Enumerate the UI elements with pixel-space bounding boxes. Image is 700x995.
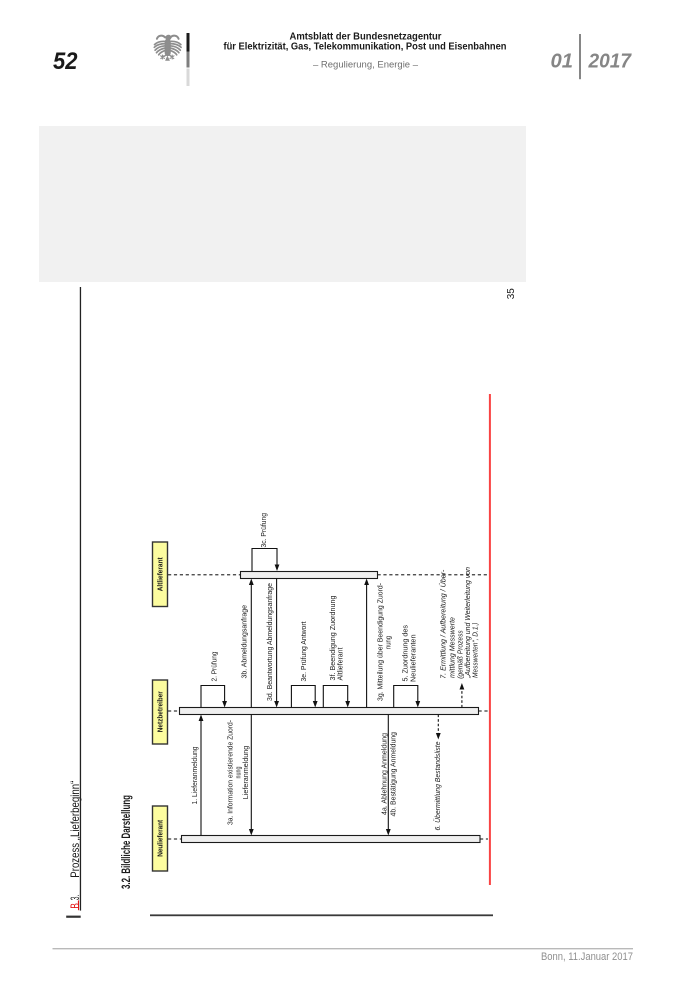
svg-text:(gemäß Prozess: (gemäß Prozess xyxy=(458,630,465,679)
svg-text:7. Ermittlung / Aufbereitung /: 7. Ermittlung / Aufbereitung / Über- xyxy=(440,569,448,679)
svg-text:52: 52 xyxy=(53,48,78,75)
svg-text:35: 35 xyxy=(506,288,517,299)
svg-text:3c. Prüfung: 3c. Prüfung xyxy=(261,513,268,548)
svg-text:Prozess „Lieferbeginn“: Prozess „Lieferbeginn“ xyxy=(68,781,82,878)
svg-text:2017: 2017 xyxy=(588,50,633,73)
svg-text:Altlieferant: Altlieferant xyxy=(338,647,345,680)
svg-text:4a. Ablehnung Anmeldung: 4a. Ablehnung Anmeldung xyxy=(382,733,389,815)
svg-text:Neulieferanten: Neulieferanten xyxy=(411,634,418,682)
svg-text:5. Zuordnung des: 5. Zuordnung des xyxy=(403,624,410,681)
svg-text:für Elektrizität, Gas, Telekom: für Elektrizität, Gas, Telekommunikation… xyxy=(224,41,507,53)
svg-text:Lieferanmeldung: Lieferanmeldung xyxy=(243,746,250,800)
svg-text:3a. Information existierende Z: 3a. Information existierende Zuord- xyxy=(228,719,235,825)
svg-text:01: 01 xyxy=(551,50,574,73)
svg-text:mittlung Messwerte: mittlung Messwerte xyxy=(450,617,457,678)
svg-text:nung: nung xyxy=(386,636,393,649)
svg-text:3b. Abmeldungsanfrage: 3b. Abmeldungsanfrage xyxy=(242,605,249,679)
svg-text:„Aufbereitung und Weiterleitun: „Aufbereitung und Weiterleitung von xyxy=(465,567,472,679)
svg-text:– Regulierung, Energie –: – Regulierung, Energie – xyxy=(313,59,419,70)
svg-text:Bonn, 11.Januar 2017: Bonn, 11.Januar 2017 xyxy=(541,951,633,963)
svg-text:Netzbetreiber: Netzbetreiber xyxy=(155,691,164,732)
svg-text:4b. Bestätigung Anmeldung: 4b. Bestätigung Anmeldung xyxy=(391,732,398,817)
svg-text:nung: nung xyxy=(236,766,243,778)
svg-text:B.: B. xyxy=(68,901,82,909)
svg-text:3d. Beantwortung Abmeldungsanf: 3d. Beantwortung Abmeldungsanfrage xyxy=(267,583,274,701)
svg-text:3.2. Bildliche Darstellung: 3.2. Bildliche Darstellung xyxy=(119,795,133,889)
svg-text:3f. Beendigung Zuordnung: 3f. Beendigung Zuordnung xyxy=(330,595,337,680)
svg-text:3.: 3. xyxy=(68,895,82,901)
svg-text:3e. Prüfung Antwort: 3e. Prüfung Antwort xyxy=(301,621,308,681)
svg-text:3g. Mitteilung über Beendigung: 3g. Mitteilung über Beendigung Zuord- xyxy=(378,582,385,701)
svg-text:Messwerten“, D.1.): Messwerten“, D.1.) xyxy=(473,623,480,679)
svg-text:2. Prüfung: 2. Prüfung xyxy=(212,651,219,681)
svg-text:Altlieferant: Altlieferant xyxy=(155,557,164,592)
svg-text:6. Übermittlung Bestandsliste: 6. Übermittlung Bestandsliste xyxy=(434,741,442,830)
svg-text:1. Lieferanmeldung: 1. Lieferanmeldung xyxy=(192,746,199,804)
svg-text:Neulieferant: Neulieferant xyxy=(155,819,164,857)
